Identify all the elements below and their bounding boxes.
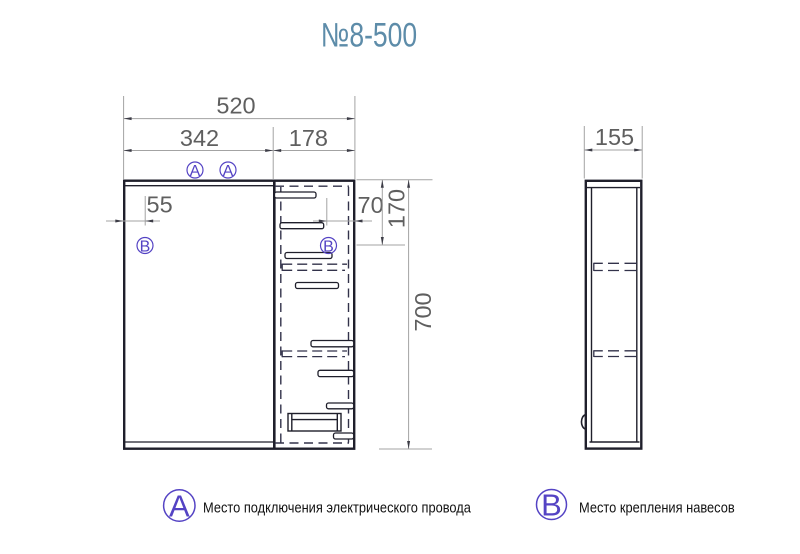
svg-text:520: 520 — [216, 93, 255, 119]
svg-text:A: A — [190, 163, 201, 180]
svg-text:170: 170 — [384, 189, 410, 228]
svg-text:A: A — [169, 489, 190, 524]
svg-text:B: B — [541, 488, 562, 523]
svg-text:B: B — [323, 238, 334, 255]
svg-text:70: 70 — [358, 192, 384, 218]
svg-text:342: 342 — [180, 125, 219, 151]
svg-text:700: 700 — [410, 292, 436, 331]
svg-text:Место крепления навесов: Место крепления навесов — [579, 499, 735, 516]
svg-text:178: 178 — [289, 125, 328, 151]
svg-text:Место подключения электрическо: Место подключения электрического провода — [203, 499, 471, 516]
svg-text:A: A — [223, 163, 234, 180]
svg-text:55: 55 — [147, 192, 173, 218]
svg-text:155: 155 — [595, 124, 634, 150]
svg-text:№8-500: №8-500 — [321, 16, 417, 54]
svg-text:B: B — [140, 238, 151, 255]
